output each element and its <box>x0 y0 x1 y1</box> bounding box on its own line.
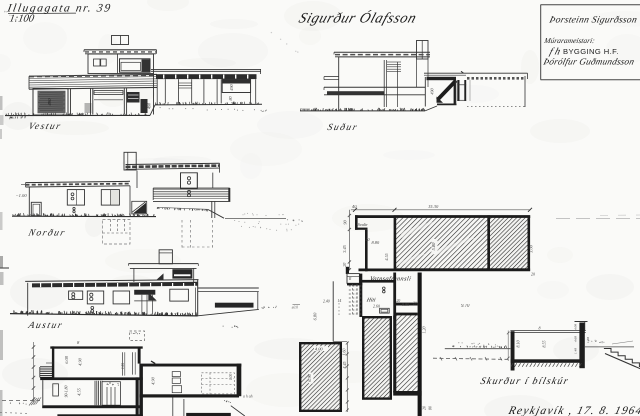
svg-text:9.70: 9.70 <box>461 304 470 309</box>
svg-text:4.90: 4.90 <box>151 376 156 384</box>
svg-text:2.40: 2.40 <box>323 300 330 304</box>
svg-text:6.90: 6.90 <box>307 373 312 381</box>
svg-text:Skurður í bílskúr: Skurður í bílskúr <box>479 376 570 387</box>
svg-text:Múrarameistari:: Múrarameistari: <box>543 36 596 45</box>
svg-text:90-1.80: 90-1.80 <box>65 386 69 398</box>
svg-text:90: 90 <box>342 220 347 224</box>
svg-text:1.00: 1.00 <box>229 374 233 380</box>
svg-text:Illugagata nr. 39: Illugagata nr. 39 <box>5 2 112 15</box>
svg-text:−1.00: −1.00 <box>16 193 28 198</box>
svg-text:80: 80 <box>228 97 233 101</box>
svg-text:Svalir: Svalir <box>358 222 368 227</box>
svg-text:6.80: 6.80 <box>313 312 318 320</box>
svg-text:a h ah: a h ah <box>243 395 253 399</box>
svg-text:Austur: Austur <box>26 320 64 331</box>
svg-text:20: 20 <box>342 263 347 267</box>
svg-text:Reykjavík , 17. 8. 1964: Reykjavík , 17. 8. 1964 <box>506 404 640 416</box>
svg-text:BYGGING H.F.: BYGGING H.F. <box>563 47 619 56</box>
svg-text:8.80: 8.80 <box>372 240 380 245</box>
svg-text:4.55: 4.55 <box>384 253 389 260</box>
svg-text:4.00: 4.00 <box>574 324 578 330</box>
svg-text:4.45: 4.45 <box>342 361 347 368</box>
svg-text:490: 490 <box>229 83 234 90</box>
svg-text:Sigurður Ólafsson: Sigurður Ólafsson <box>297 10 419 27</box>
svg-text:490: 490 <box>47 98 52 106</box>
svg-text:Þorsteinn Sigurðsson: Þorsteinn Sigurðsson <box>547 15 638 26</box>
svg-text:Þórólfur Guðmundsson: Þórólfur Guðmundsson <box>541 57 635 68</box>
svg-text:4.00: 4.00 <box>315 346 323 351</box>
svg-text:6.08: 6.08 <box>64 355 69 363</box>
svg-text:2.60: 2.60 <box>373 304 380 309</box>
svg-text:80: 80 <box>429 406 433 410</box>
svg-text:1.60: 1.60 <box>586 337 590 343</box>
svg-text:5.80: 5.80 <box>431 242 436 251</box>
svg-text:1.55: 1.55 <box>121 363 125 369</box>
svg-text:15.30: 15.30 <box>428 204 439 209</box>
svg-text:4.90: 4.90 <box>78 357 83 365</box>
svg-text:490: 490 <box>430 87 435 94</box>
svg-text:20: 20 <box>413 302 417 306</box>
svg-text:490: 490 <box>147 103 152 109</box>
svg-text:Suður: Suður <box>326 122 359 133</box>
svg-text:4.55: 4.55 <box>77 387 82 395</box>
svg-text:20: 20 <box>366 237 370 242</box>
svg-text:Norður: Norður <box>26 228 67 239</box>
svg-text:1.20: 1.20 <box>422 327 427 334</box>
svg-text:8.55: 8.55 <box>542 340 547 347</box>
svg-text:1.60: 1.60 <box>343 349 347 356</box>
svg-text:1.40: 1.40 <box>574 348 578 354</box>
svg-text:Vestur: Vestur <box>27 121 63 132</box>
svg-text:4.60: 4.60 <box>574 336 578 342</box>
svg-text:20: 20 <box>423 406 427 410</box>
svg-text:8.10: 8.10 <box>516 340 521 347</box>
svg-text:1:100: 1:100 <box>8 14 35 25</box>
svg-text:±0.0: ±0.0 <box>292 306 299 310</box>
svg-text:20: 20 <box>531 272 535 277</box>
svg-text:3.00: 3.00 <box>529 244 534 252</box>
svg-text:8.80: 8.80 <box>402 302 409 307</box>
svg-text:14: 14 <box>338 299 342 303</box>
svg-text:20: 20 <box>397 299 401 303</box>
svg-text:3.45: 3.45 <box>342 244 347 252</box>
svg-text:8: 8 <box>539 326 541 331</box>
